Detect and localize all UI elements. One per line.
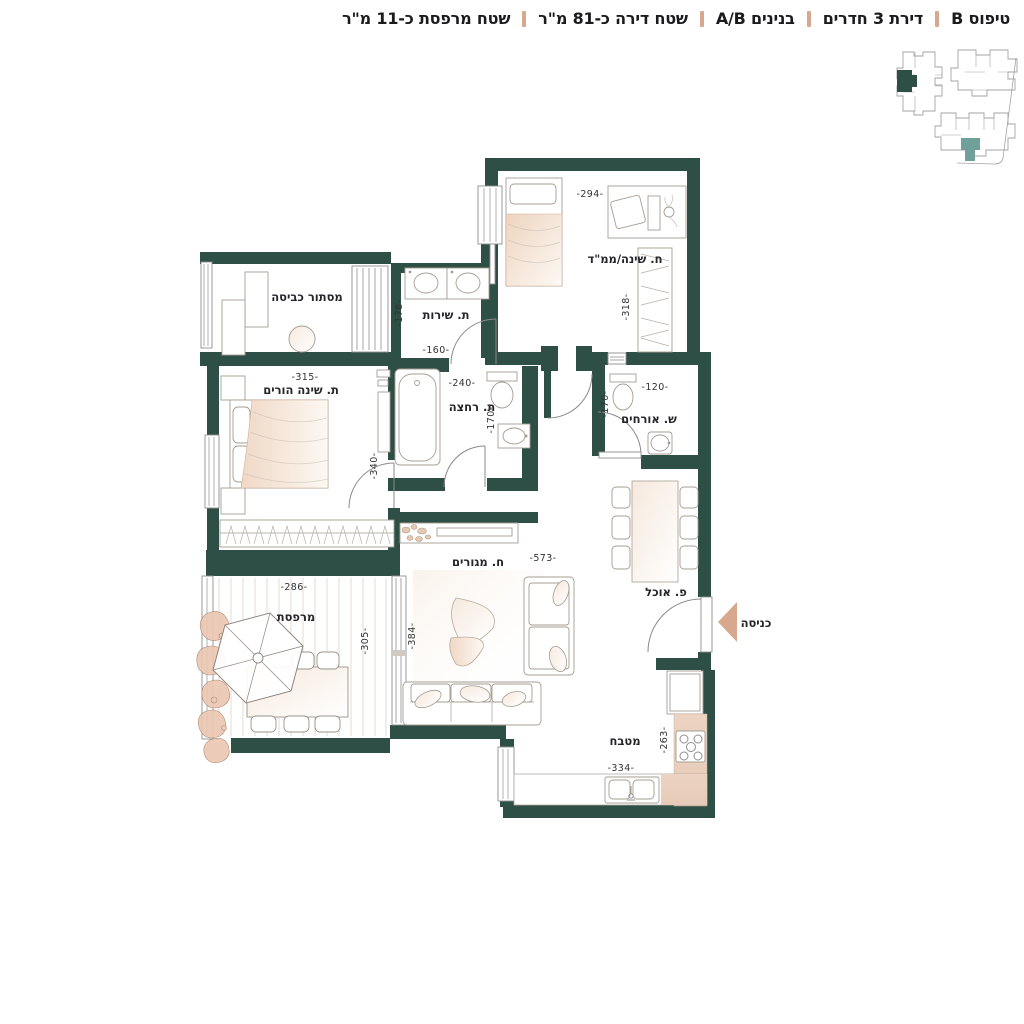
bathtub-icon — [395, 369, 440, 465]
dim-mamad-h: -318- — [621, 294, 632, 321]
floor-plan: ח. שינה/ממ"ד -294- -318- מסתור כביסה ת. … — [195, 148, 775, 848]
dim-bath-h: -170- — [486, 407, 497, 434]
label-mamad: ח. שינה/ממ"ד — [587, 252, 662, 266]
sink-icon — [648, 432, 672, 454]
bath-door-icon — [444, 446, 485, 487]
counter-corner-icon — [661, 774, 707, 805]
label-entrance: כניסה — [741, 616, 772, 630]
title-balcony-area: שטח מרפסת כ-11 מ"ר — [342, 9, 510, 28]
nightstand-icon — [221, 376, 245, 400]
bed-double-icon — [230, 400, 328, 488]
kitchen-sink-icon — [605, 777, 659, 803]
kitchen-window-icon — [498, 747, 514, 801]
title-separator — [807, 11, 811, 27]
tv-console-icon — [400, 523, 518, 543]
desk-icon — [608, 186, 686, 238]
keyplan-unit-teal — [961, 138, 980, 161]
dim-service-h: -178- — [394, 300, 405, 327]
label-parents: ת. שינה הורים — [263, 383, 339, 397]
boiler-icon — [289, 326, 315, 352]
mamad-door-icon — [548, 374, 592, 418]
parents-window-icon — [205, 435, 219, 508]
dim-mamad-w: -294- — [577, 189, 604, 200]
sofa-icon — [403, 682, 541, 725]
label-service: ת. שירות — [422, 308, 469, 322]
title-separator — [935, 11, 939, 27]
title-buildings: בנינים A/B — [716, 9, 795, 28]
title-separator — [700, 11, 704, 27]
keyplan-building-topright — [951, 50, 1017, 96]
dim-balcony-w: -286- — [281, 582, 308, 593]
appliance-icon — [222, 300, 245, 355]
key-plan — [880, 45, 1024, 180]
wc-window-icon — [608, 353, 626, 364]
dim-kitchen-w: -334- — [608, 763, 635, 774]
bed-single-icon — [506, 178, 562, 286]
sink-icon — [498, 424, 530, 448]
room-laundry — [222, 266, 388, 355]
washer-icon — [405, 268, 447, 299]
dim-bath-w: -240- — [449, 378, 476, 389]
label-kitchen: מטבח — [609, 734, 640, 748]
armchair-icon — [524, 577, 574, 675]
dim-parents-h: -340- — [369, 453, 380, 480]
room-dining — [612, 481, 698, 582]
dim-wc-w: -120- — [642, 382, 669, 393]
dim-service-w: -160- — [423, 345, 450, 356]
label-laundry: מסתור כביסה — [271, 290, 343, 304]
plan-title-bar: טיפוס B דירת 3 חדרים בנינים A/B שטח דירה… — [342, 9, 1010, 28]
keyplan-unit-dark — [897, 70, 917, 92]
title-separator — [522, 11, 526, 27]
room-balcony — [197, 578, 386, 763]
dim-balcony-h: -305- — [360, 628, 371, 655]
entrance-door-icon — [648, 597, 712, 652]
title-type: טיפוס B — [951, 9, 1010, 28]
title-rooms: דירת 3 חדרים — [823, 9, 923, 28]
label-wc: ש. אורחים — [621, 412, 677, 426]
title-apartment-area: שטח דירה כ-81 מ"ר — [538, 9, 688, 28]
toilet-icon — [610, 374, 636, 410]
dim-kitchen-h: -263- — [659, 727, 670, 754]
louver-screen-icon — [352, 266, 388, 352]
dresser-icon — [377, 370, 390, 452]
dim-wc-h: -170- — [600, 391, 611, 418]
dim-living-h: -384- — [407, 623, 418, 650]
fridge-icon — [667, 671, 703, 714]
label-balcony: מרפסת — [277, 610, 315, 624]
dim-parents-w: -315- — [292, 372, 319, 383]
appliance-icon — [245, 272, 268, 327]
entrance-arrow-icon — [718, 602, 737, 642]
dining-table-icon — [632, 481, 678, 582]
room-service — [405, 268, 489, 299]
floorplan-page: טיפוס B דירת 3 חדרים בנינים A/B שטח דירה… — [0, 0, 1024, 1024]
cooktop-icon — [676, 731, 705, 762]
dryer-icon — [447, 268, 489, 299]
dim-living-w: -573- — [530, 553, 557, 564]
nightstand-icon — [221, 488, 245, 514]
label-living: ח. מגורים — [452, 555, 504, 569]
closet-icon — [220, 520, 394, 547]
laundry-window-icon — [201, 262, 212, 348]
label-dining: פ. אוכל — [645, 585, 687, 599]
